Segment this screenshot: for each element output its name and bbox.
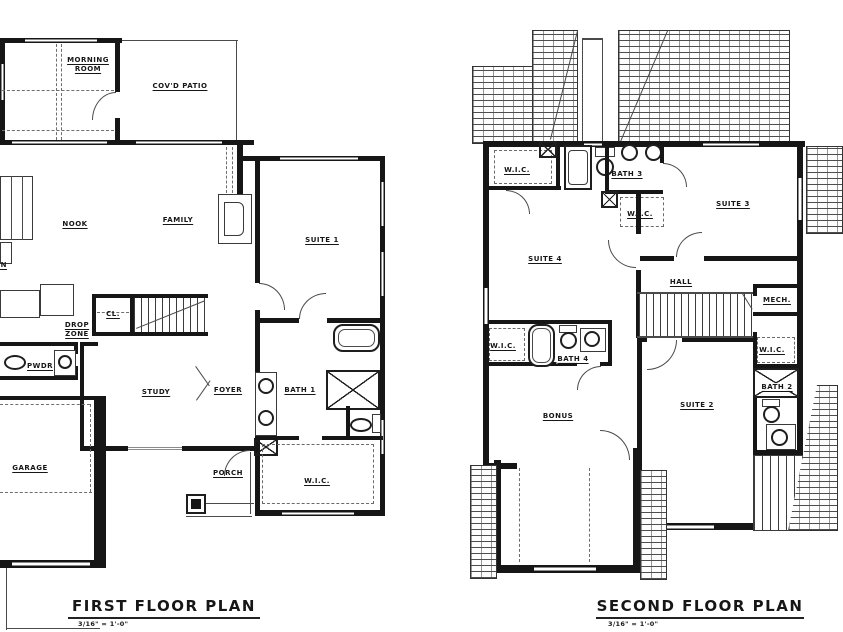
sink	[771, 429, 788, 446]
dashed-ceiling-line	[589, 468, 590, 562]
wall-segment	[753, 284, 757, 296]
wall-segment	[489, 320, 611, 324]
wall-segment	[704, 256, 803, 261]
room-label-bath3: BATH 3	[611, 170, 642, 179]
door-swing-arc	[663, 163, 687, 187]
door-swing-arc	[506, 190, 530, 214]
door-swing-arc	[577, 366, 601, 390]
door-swing-arc	[608, 240, 636, 268]
cabinet-outline	[568, 150, 588, 185]
roof-shingle-hatch	[640, 470, 667, 580]
floor-plan-second: W.I.C. BATH 3 W.I.C. SUITE 3 SUITE 4 HAL…	[0, 0, 843, 632]
room-label-bath4: BATH 4	[556, 355, 589, 364]
window	[660, 525, 714, 529]
wall-segment	[633, 448, 640, 572]
bathtub-inner	[532, 328, 551, 363]
room-label-mech: MECH.	[763, 296, 791, 305]
window	[798, 178, 802, 220]
wall-segment	[753, 312, 803, 316]
x-marked-fixture	[539, 141, 557, 158]
door-swing-arc	[600, 430, 630, 460]
room-label-bonus: BONUS	[543, 412, 573, 421]
wall-segment	[640, 256, 674, 261]
wall-segment	[605, 141, 609, 190]
thin-line	[602, 40, 603, 143]
room-label-wic-bath4: W.I.C.	[490, 342, 516, 351]
window	[534, 567, 596, 571]
floor-plan-sheet: MORNING ROOM COV'D PATIO NOOK FAMILY KIT…	[0, 0, 843, 632]
second-floor-title: SECOND FLOOR PLAN	[596, 597, 804, 619]
sink	[584, 331, 600, 347]
toilet	[560, 332, 577, 349]
thin-line	[582, 38, 603, 40]
staircase	[639, 294, 753, 336]
dashed-ceiling-line	[519, 468, 520, 562]
room-label-suite3: SUITE 3	[716, 200, 750, 209]
window	[703, 143, 759, 146]
wall-segment	[489, 186, 561, 190]
room-label-hall: HALL	[670, 278, 692, 287]
roof-shingle-hatch	[532, 30, 578, 144]
room-label-wic-mid: W.I.C.	[627, 210, 653, 219]
roof-shingle-hatch	[806, 146, 843, 234]
thin-line	[582, 40, 583, 143]
wall-segment	[682, 338, 757, 342]
room-label-wic-suite2: W.I.C.	[759, 346, 785, 355]
wall-segment	[753, 398, 757, 455]
x-marked-fixture	[601, 191, 618, 208]
room-label-suite2: SUITE 2	[680, 401, 714, 410]
door-swing-arc	[676, 232, 702, 257]
wall-segment	[608, 320, 612, 366]
toilet	[763, 406, 780, 423]
room-label-suite4: SUITE 4	[528, 255, 562, 264]
sink	[621, 144, 638, 161]
roof-shingle-hatch	[470, 465, 497, 579]
wall-segment	[753, 284, 803, 288]
door-swing-arc	[647, 340, 677, 370]
wall-segment	[660, 147, 664, 163]
window	[484, 288, 488, 324]
room-label-bath2: BATH 2	[760, 383, 793, 392]
second-floor-scale: 3/16" = 1'-0"	[608, 620, 658, 628]
room-label-wic-top-left: W.I.C.	[504, 166, 530, 175]
